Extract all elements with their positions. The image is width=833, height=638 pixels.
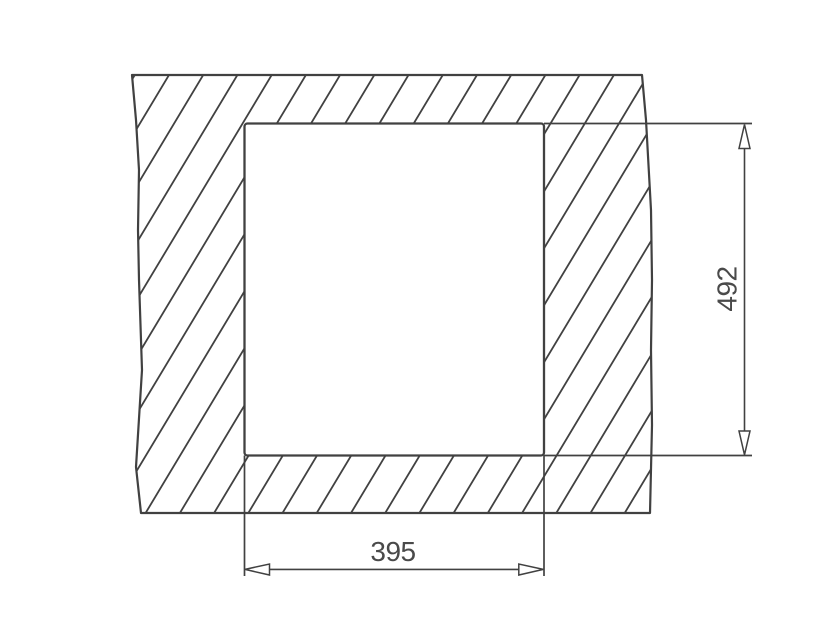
svg-text:395: 395 <box>370 536 415 567</box>
svg-text:492: 492 <box>712 266 743 311</box>
